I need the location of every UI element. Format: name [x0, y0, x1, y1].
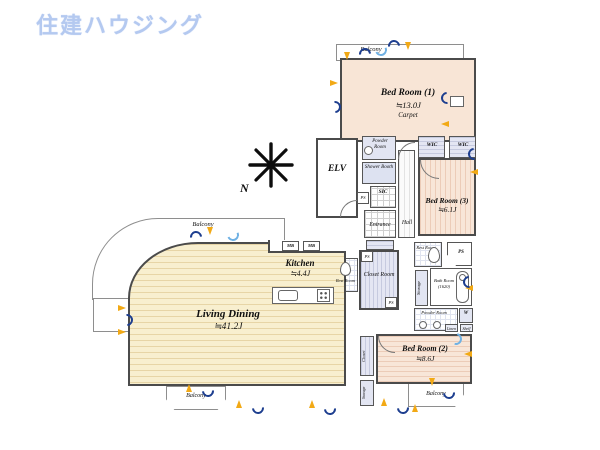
- sic-label: SIC: [371, 189, 395, 196]
- window-arrow-icon: [330, 80, 338, 86]
- washer-label: W: [460, 311, 472, 317]
- shelf-label: Shelf: [461, 326, 472, 331]
- window-arrow-icon: [429, 378, 435, 386]
- linen-box: Linen: [445, 324, 458, 332]
- bed-room-2-label: Bed Room (2): [386, 344, 464, 354]
- window-arrow-icon: [118, 329, 126, 335]
- kitchen-label: Kitchen: [262, 258, 338, 269]
- elevator-label: ELV: [318, 164, 356, 176]
- bed-room-3-label: Bed Room (3): [420, 196, 474, 205]
- powder-sink-left-icon: [419, 321, 427, 329]
- powder-upper-sink-icon: [364, 146, 373, 155]
- ps-c-label: PS: [362, 254, 372, 260]
- ps-b-label: PS: [454, 250, 468, 256]
- bath-label: Bath Room: [431, 278, 457, 284]
- mb-1-label: MB: [283, 243, 298, 249]
- closet-room-label: Closet Room: [361, 272, 397, 280]
- ps-d-label: PS: [386, 300, 396, 306]
- window-arrow-icon: [118, 305, 126, 311]
- mb-2-label: MB: [304, 243, 319, 249]
- kitchen-stove-icon: [317, 289, 330, 302]
- powder-lower-label: Powder Room: [419, 310, 449, 316]
- window-arrow-icon: [236, 400, 242, 408]
- left-balcony-label: Balcony: [168, 221, 238, 229]
- window-arrow-icon: [405, 42, 411, 50]
- living-dining-label: Living Dining: [158, 308, 298, 322]
- powder-sink-right-icon: [433, 321, 441, 329]
- compass-rose-icon: N: [238, 140, 296, 198]
- bed-room-1-door-arc: [398, 142, 415, 159]
- ps-box-c: PS: [361, 251, 373, 262]
- linen-label: Linen: [446, 326, 457, 331]
- ps-box-a: PS: [357, 192, 369, 204]
- window-arrow-icon: [309, 400, 315, 408]
- vent-curl-icon: [250, 400, 267, 417]
- ps-box-d: PS: [385, 297, 397, 308]
- hall-label: Hall: [397, 220, 417, 227]
- entrance-label: Entrance: [364, 222, 396, 229]
- storage-mid-label: Storage: [416, 272, 427, 304]
- shower-booth-label: Shower Booth: [364, 165, 394, 171]
- ps-a-label: PS: [358, 195, 368, 201]
- kitchen-area: ≒4.4J: [262, 269, 338, 279]
- wic-left-label: WIC: [420, 142, 444, 149]
- rest-center-toilet-icon: [340, 262, 351, 276]
- living-dining-area: ≒41.2J: [158, 322, 298, 334]
- window-arrow-icon: [344, 52, 350, 60]
- bath-size: (1620): [431, 284, 457, 290]
- window-arrow-icon: [381, 398, 387, 406]
- rest-upper-toilet-icon: [428, 247, 440, 263]
- window-arrow-icon: [186, 384, 192, 392]
- bed-room-1-note: Carpet: [350, 111, 466, 120]
- shelf-box: Shelf: [460, 324, 473, 332]
- kitchen-sink-icon: [278, 290, 298, 301]
- window-arrow-icon: [470, 169, 478, 175]
- compass-north-label: N: [239, 181, 250, 195]
- floor-plan-page: 住建ハウジング N Balcony Balcony Balcony Balcon…: [0, 0, 600, 450]
- agency-logo: 住建ハウジング: [36, 8, 204, 40]
- bed-room-2-area: ≒8.6J: [386, 354, 464, 363]
- mb-box-1: MB: [282, 241, 299, 251]
- window-arrow-icon: [464, 351, 472, 357]
- window-arrow-icon: [412, 404, 418, 412]
- storage-bottom-label: Storage: [361, 381, 373, 405]
- window-arrow-icon: [441, 121, 449, 127]
- mb-box-2: MB: [303, 241, 320, 251]
- entrance-shoe-box: [366, 240, 394, 250]
- bed-room-3-area: ≒6.1J: [420, 205, 474, 214]
- window-arrow-icon: [207, 227, 213, 235]
- vent-curl-icon: [322, 401, 339, 418]
- closet-bottom-label: Closet: [361, 338, 373, 374]
